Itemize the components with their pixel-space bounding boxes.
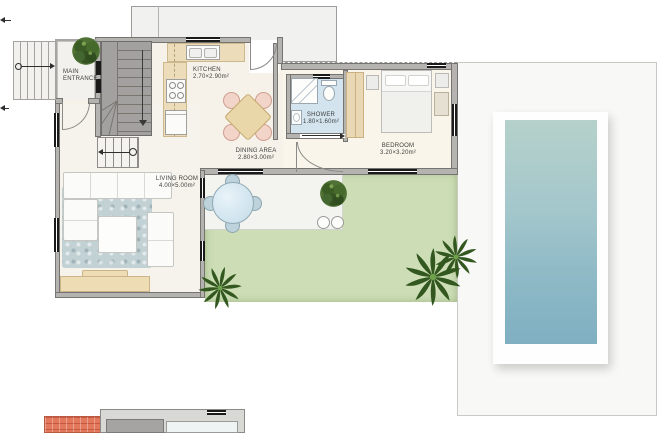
stove <box>166 79 186 103</box>
wardrobe <box>346 72 364 138</box>
toilet-bowl <box>323 86 335 101</box>
tree-icon <box>69 34 103 68</box>
edge-arrow-icon-2 <box>0 105 5 111</box>
sink-bowl-right <box>204 48 217 58</box>
burner-icon <box>177 82 184 89</box>
wardrobe-divider <box>355 73 356 137</box>
living-garden-window-2 <box>200 241 205 261</box>
label-kitchen: KITCHEN 2.70×2.90m² <box>193 67 229 81</box>
coffee-table <box>98 216 137 253</box>
bedroom-top-window <box>427 63 446 68</box>
neighbor-roof-tiles <box>44 416 101 433</box>
shower-slide-arrow <box>302 135 340 136</box>
shower-stall <box>291 78 318 104</box>
stair-start-circle-icon <box>129 148 137 156</box>
nightstand-right <box>435 73 449 88</box>
kitchen-window <box>186 37 220 42</box>
label-main-entrance: MAIN ENTRANCE <box>63 69 98 83</box>
burner-icon <box>169 82 176 89</box>
garden-stool <box>331 216 344 229</box>
label-shower: SHOWER 1.80×1.60m² <box>303 112 339 126</box>
floor-plan-canvas: MAIN ENTRANCE KITCHEN 2.70×2.90m² DINING… <box>0 0 666 433</box>
stair-winder-treads <box>101 99 118 136</box>
bed-pillow <box>385 75 406 86</box>
burner-icon <box>169 92 176 99</box>
bedroom-dresser <box>434 92 449 116</box>
entrance-steps <box>13 41 56 100</box>
entry-arrow-icon <box>50 63 55 69</box>
double-bed <box>381 70 432 133</box>
living-left-window-1 <box>54 113 59 147</box>
neighbor-room <box>166 421 238 433</box>
burner-icon <box>177 92 184 99</box>
nightstand-left <box>366 75 379 90</box>
stair-down-arrow-icon <box>139 120 147 126</box>
bedroom-right-window <box>452 104 457 136</box>
stair-left-line <box>102 152 129 153</box>
label-dining-area: DINING AREA 2.80×3.00m² <box>236 148 277 162</box>
kitchen-appliance <box>165 110 187 135</box>
garden-stool <box>317 216 330 229</box>
palm-tree-icon <box>401 245 465 309</box>
sink-basin <box>293 113 300 122</box>
bed-pillow <box>408 75 429 86</box>
edge-arrow-icon-1 <box>0 17 5 23</box>
wall-living-bottom <box>55 292 205 298</box>
entry-circle-icon <box>15 63 22 70</box>
stair-direction-line <box>142 50 143 120</box>
tree-icon <box>317 177 350 210</box>
kitchen-sink <box>186 45 220 60</box>
neighbor-window <box>207 410 226 415</box>
wall-dining-divider <box>273 43 278 140</box>
living-left-window-2 <box>54 218 59 252</box>
garden-sliding-door-left <box>218 169 263 174</box>
sofa-left-section <box>63 199 98 241</box>
shower-slide-arrowhead-icon <box>340 133 345 139</box>
swimming-pool <box>505 120 597 344</box>
patio-table <box>212 182 254 224</box>
label-bedroom: BEDROOM 3.20×3.20m² <box>380 143 416 157</box>
sofa-armchair <box>147 212 174 267</box>
label-living-room: LIVING ROOM 4.00×5.00m² <box>156 176 198 190</box>
upper-floor-divider <box>158 6 159 38</box>
appliance-door-line <box>166 114 186 115</box>
palm-tree-icon <box>196 264 244 312</box>
garden-sliding-door-right <box>368 169 417 174</box>
sideboard <box>60 276 150 292</box>
neighbor-stairwell <box>106 419 164 433</box>
living-garden-window-1 <box>200 178 205 198</box>
entry-arrow-line <box>22 66 51 67</box>
sink-bowl-left <box>189 48 202 58</box>
bed-blanket <box>382 91 431 132</box>
bathroom-sink <box>291 110 302 125</box>
stair-left-arrow-icon <box>98 149 103 155</box>
